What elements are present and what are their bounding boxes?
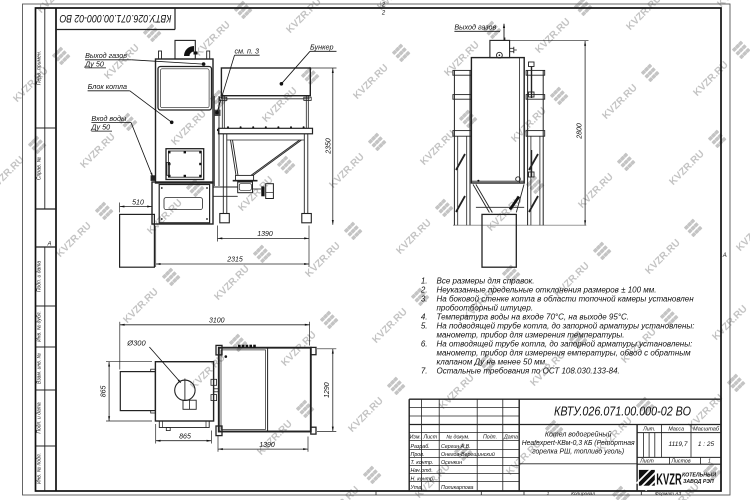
svg-text:Поликарпова: Поликарпова — [441, 485, 474, 491]
svg-text:Сергин А.В.: Сергин А.В. — [441, 444, 471, 450]
svg-text:пробоотборный штуцер.: пробоотборный штуцер. — [437, 304, 534, 313]
svg-text:Ø300: Ø300 — [126, 339, 146, 348]
svg-text:KVZR.RU: KVZR.RU — [370, 306, 409, 345]
svg-text:КВТУ.026.071.00.000-02 ВО: КВТУ.026.071.00.000-02 ВО — [554, 405, 691, 419]
svg-text:Утв.: Утв. — [411, 485, 423, 491]
svg-text:Н. контр.: Н. контр. — [411, 477, 435, 483]
svg-text:Взам. инв. №: Взам. инв. № — [37, 352, 43, 384]
svg-text:Ду 50: Ду 50 — [84, 59, 104, 68]
svg-text:KVZR.RU: KVZR.RU — [734, 214, 750, 253]
svg-text:манометр, прибор для измерения: манометр, прибор для измерения температу… — [437, 331, 625, 340]
svg-text:КОТЕЛЬНЫЙ: КОТЕЛЬНЫЙ — [682, 470, 717, 478]
svg-text:Инв. № дубл.: Инв. № дубл. — [37, 311, 43, 342]
svg-text:KVZR.RU: KVZR.RU — [437, 372, 476, 411]
svg-text:Неуказанные предельные отклоне: Неуказанные предельные отклонения размер… — [437, 286, 657, 295]
svg-text:Осенкин: Осенкин — [441, 460, 462, 466]
svg-text:KVZR.RU: KVZR.RU — [394, 217, 433, 256]
svg-text:Остальные требования по ОСТ 10: Остальные требования по ОСТ 108.030.133-… — [437, 367, 620, 376]
svg-text:KVZR.RU: KVZR.RU — [260, 85, 299, 124]
svg-text:KVZR.RU: KVZR.RU — [255, 418, 294, 457]
svg-text:2315: 2315 — [226, 257, 243, 264]
svg-text:KVZR.RU: KVZR.RU — [78, 131, 117, 170]
svg-text:Изм.: Изм. — [410, 435, 421, 441]
svg-text:Котел водогрейный: Котел водогрейный — [545, 431, 612, 439]
svg-text:Подп.: Подп. — [483, 435, 497, 441]
svg-text:Онегов-Верещинский: Онегов-Верещинский — [441, 451, 495, 458]
svg-text:KVZR.RU: KVZR.RU — [418, 128, 457, 167]
svg-text:865: 865 — [179, 434, 191, 441]
svg-text:Перв. примен.: Перв. примен. — [37, 51, 43, 85]
svg-text:Нач.отд.: Нач.отд. — [411, 468, 433, 474]
svg-text:KVZR.RU: KVZR.RU — [600, 82, 639, 121]
svg-text:510: 510 — [132, 200, 144, 207]
svg-text:KVZR.RU: KVZR.RU — [279, 329, 318, 368]
svg-text:А: А — [46, 242, 51, 248]
svg-text:Разраб.: Разраб. — [411, 444, 430, 450]
svg-text:Бункер: Бункер — [310, 43, 333, 52]
svg-text:см. п. 3: см. п. 3 — [235, 47, 259, 56]
svg-text:Листов: Листов — [670, 459, 691, 465]
svg-text:Heatexpert-КВм-0,3 КБ (Ретортн: Heatexpert-КВм-0,3 КБ (Ретортная — [522, 440, 635, 447]
svg-text:Копировал: Копировал — [571, 491, 595, 497]
svg-text:№ докум.: № докум. — [446, 435, 469, 441]
svg-text:KVZR.RU: KVZR.RU — [691, 59, 730, 98]
svg-text:На подводящей трубе котла, до: На подводящей трубе котла, до запорной а… — [437, 322, 695, 331]
svg-text:Т. контр.: Т. контр. — [411, 460, 434, 466]
svg-text:KVZR.RU: KVZR.RU — [576, 171, 615, 210]
svg-text:KVZR: KVZR — [656, 471, 682, 488]
svg-text:Пров.: Пров. — [411, 452, 425, 458]
svg-text:Формат А3: Формат А3 — [655, 491, 682, 497]
svg-text:1119,7: 1119,7 — [669, 441, 688, 448]
svg-text:KVZR.RU: KVZR.RU — [121, 286, 160, 325]
svg-text:KVZR.RU: KVZR.RU — [624, 0, 663, 33]
svg-text:1: 1 — [547, 491, 550, 497]
svg-text:клапаном Ду не менее 50 мм.: клапаном Ду не менее 50 мм. — [437, 358, 548, 367]
svg-text:Лист: Лист — [422, 435, 437, 441]
svg-text:3100: 3100 — [209, 317, 225, 324]
svg-text:Справ. №: Справ. № — [37, 156, 43, 180]
svg-text:1: 1 — [708, 459, 711, 465]
svg-text:1.: 1. — [421, 277, 428, 286]
svg-text:Вход воды: Вход воды — [91, 114, 127, 123]
svg-text:Подп. и дата: Подп. и дата — [37, 402, 43, 434]
svg-text:Масштаб: Масштаб — [693, 427, 720, 433]
svg-text:манометр, прибор для измерения: манометр, прибор для измерения емператур… — [437, 349, 692, 358]
svg-text:2: 2 — [381, 11, 386, 17]
svg-text:1 : 25: 1 : 25 — [698, 441, 715, 448]
svg-text:KVZR.RU: KVZR.RU — [322, 484, 361, 500]
svg-text:KVZR.RU: KVZR.RU — [346, 395, 385, 434]
svg-text:горелка РШ, топливо уголь): горелка РШ, топливо уголь) — [532, 448, 624, 455]
svg-text:2350: 2350 — [325, 138, 332, 155]
svg-text:Масса: Масса — [668, 427, 684, 433]
svg-text:KVZR.RU: KVZR.RU — [351, 62, 390, 101]
svg-text:3.: 3. — [421, 295, 428, 304]
svg-text:KVZR.RU: KVZR.RU — [102, 42, 141, 81]
svg-text:Лит.: Лит. — [642, 427, 655, 433]
svg-text:6.: 6. — [421, 340, 428, 349]
svg-text:На боковой стенке котла в обла: На боковой стенке котла в области топочн… — [437, 295, 695, 304]
svg-text:KVZR.RU: KVZR.RU — [643, 237, 682, 276]
svg-text:5.: 5. — [421, 322, 428, 331]
svg-text:2800: 2800 — [577, 123, 584, 140]
svg-text:Лист: Лист — [639, 459, 654, 465]
svg-text:1390: 1390 — [257, 231, 273, 238]
svg-text:А: А — [722, 253, 727, 259]
svg-text:2.: 2. — [420, 286, 428, 295]
svg-text:КВТУ.026.071.00.000-02 ВО: КВТУ.026.071.00.000-02 ВО — [59, 12, 171, 24]
svg-text:Все размеры для справок.: Все размеры для справок. — [437, 277, 535, 286]
svg-text:KVZR.RU: KVZR.RU — [284, 0, 323, 36]
svg-text:Выход газов: Выход газов — [454, 23, 496, 32]
svg-text:Блок котла: Блок котла — [88, 82, 127, 91]
svg-text:KVZR.RU: KVZR.RU — [212, 263, 251, 302]
svg-text:KVZR.RU: KVZR.RU — [533, 16, 572, 55]
svg-text:KVZR.RU: KVZR.RU — [54, 220, 93, 259]
svg-text:KVZR.RU: KVZR.RU — [303, 240, 342, 279]
svg-text:Подп. и дата: Подп. и дата — [37, 261, 43, 293]
svg-text:Инв. № подл.: Инв. № подл. — [37, 453, 43, 484]
svg-text:Дата: Дата — [503, 435, 518, 441]
svg-text:2: 2 — [381, 3, 386, 9]
svg-text:KVZR.RU: KVZR.RU — [442, 39, 481, 78]
svg-text:7.: 7. — [421, 367, 428, 376]
svg-text:KVZR.RU: KVZR.RU — [667, 148, 706, 187]
svg-text:1390: 1390 — [259, 442, 275, 449]
svg-text:4.: 4. — [421, 313, 428, 322]
svg-text:865: 865 — [101, 385, 108, 397]
svg-text:Ду 50: Ду 50 — [90, 123, 110, 132]
svg-text:На отводящей трубе котла, до з: На отводящей трубе котла, до запорной ар… — [437, 340, 693, 349]
svg-text:KVZR.RU: KVZR.RU — [193, 19, 232, 58]
svg-text:1290: 1290 — [324, 382, 331, 398]
svg-text:Температура воды на входе 70°С: Температура воды на входе 70°С, на выход… — [437, 313, 630, 322]
svg-text:ЗАВОД РЭП: ЗАВОД РЭП — [683, 479, 714, 485]
svg-text:KVZR.RU: KVZR.RU — [169, 108, 208, 147]
svg-text:KVZR.RU: KVZR.RU — [327, 151, 366, 190]
